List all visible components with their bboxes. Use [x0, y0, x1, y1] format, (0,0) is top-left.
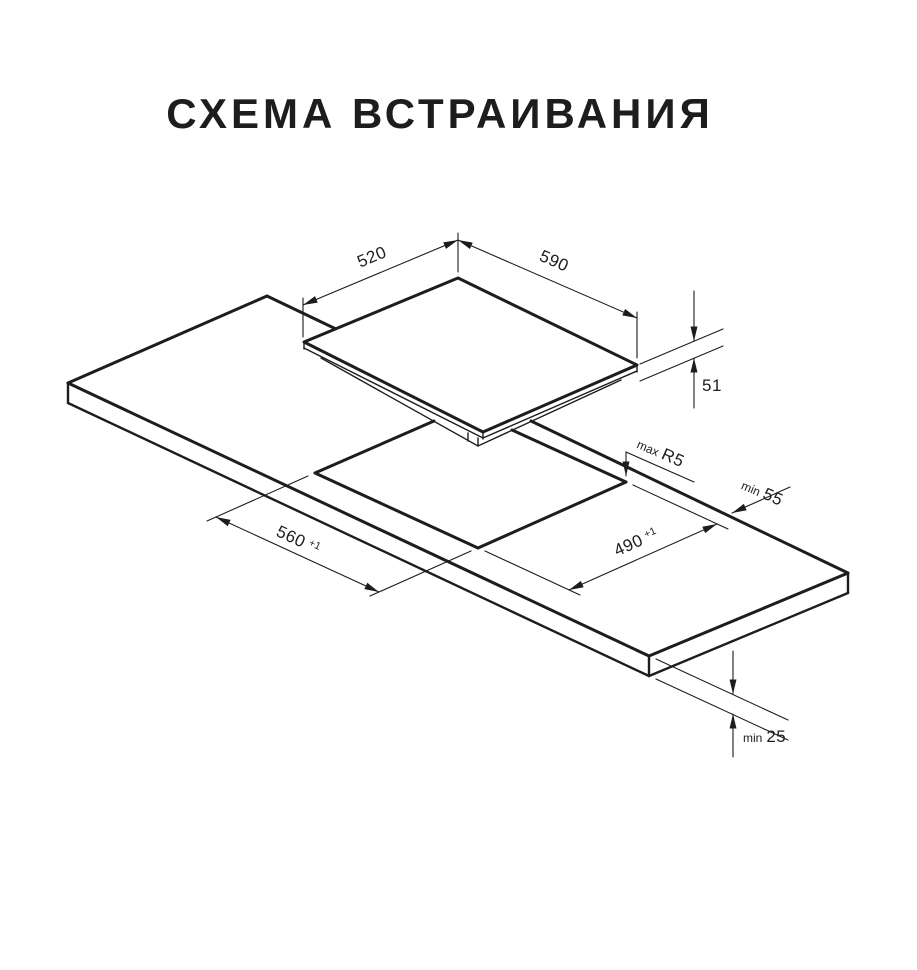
cutout-back-left-edge	[315, 421, 434, 473]
countertop-back-left-edge	[68, 296, 267, 383]
extension-line	[485, 551, 580, 595]
dim-cooktop-height-51: 51	[640, 291, 723, 408]
extension-line	[656, 659, 788, 720]
dim-label-cutout-depth: 490+1	[611, 524, 661, 560]
countertop-bottom-right-edge	[649, 593, 848, 676]
label-max-corner-radius: maxR5	[626, 434, 694, 482]
edge-clearance-text: min55	[739, 475, 786, 510]
dim-cutout-depth-490: 490+1	[485, 485, 728, 595]
label-min-edge-clearance: min55	[732, 475, 790, 513]
cutout-front-right-edge	[478, 482, 626, 548]
page-title: СХЕМА ВСТРАИВАНИЯ	[166, 90, 714, 137]
thickness-text: min25	[743, 727, 786, 746]
cutout-opening	[315, 421, 626, 548]
corner-radius-text: maxR5	[634, 434, 687, 471]
dim-min-countertop-thickness: min25	[656, 651, 788, 757]
installation-diagram-page: СХЕМА ВСТРАИВАНИЯ	[0, 0, 917, 970]
cooktop-glass-top-face	[304, 278, 637, 432]
cooktop-drawing	[304, 278, 637, 446]
countertop-back-right-edge-a	[267, 296, 336, 329]
diagram-svg: СХЕМА ВСТРАИВАНИЯ	[0, 0, 917, 970]
countertop-front-left-edge	[68, 383, 649, 656]
countertop-back-right-edge-b	[531, 421, 848, 573]
dim-label-hob-width: 520	[354, 242, 389, 271]
extension-line	[207, 476, 308, 521]
extension-line	[370, 551, 471, 596]
dim-cutout-width-560: 560+1	[207, 476, 471, 596]
dim-label-hob-height: 51	[702, 376, 722, 395]
dimension-arrow-line	[569, 524, 717, 590]
countertop-bottom-left-edge	[68, 403, 649, 676]
dim-label-cutout-width: 560+1	[273, 522, 323, 558]
extension-line	[640, 329, 723, 364]
dim-label-hob-depth: 590	[537, 246, 572, 275]
countertop-front-right-edge	[649, 573, 848, 656]
